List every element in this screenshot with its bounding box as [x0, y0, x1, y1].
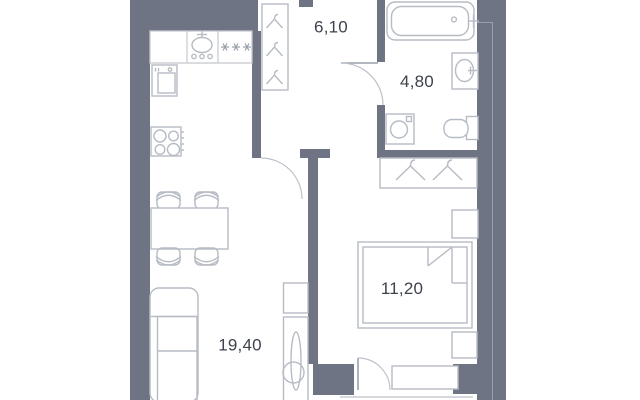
oven-icon	[152, 65, 177, 96]
bathtub-icon	[387, 2, 479, 40]
mirror-cabinet-icon	[283, 283, 308, 400]
bedroom-wardrobe	[380, 158, 477, 188]
wall-bottom-chunk-left	[313, 364, 354, 395]
chair-icon	[156, 248, 181, 265]
floor-plan-canvas: 6,10 4,80 11,20 19,40	[0, 0, 640, 400]
bedroom-cabinet	[452, 332, 477, 358]
hall-closet	[262, 4, 288, 90]
living-room-door	[261, 158, 302, 199]
balcony-window-icon	[392, 366, 458, 389]
room-label-bedroom: 11,20	[381, 279, 423, 298]
door-swing-icon	[358, 358, 390, 390]
bathroom-door	[341, 63, 383, 105]
door-swing-icon	[261, 158, 302, 199]
dining-table-icon	[151, 208, 228, 249]
wall-hall-stub	[300, 149, 330, 158]
wall-right	[477, 0, 506, 400]
stove-icon	[151, 127, 184, 156]
wall-bath-bottom	[377, 150, 477, 158]
bedside-table-icon	[452, 210, 478, 238]
wall-bottom-chunk-right	[453, 364, 493, 394]
chair-icon	[194, 248, 219, 265]
wall-top-nub	[299, 0, 313, 7]
room-label-hallway: 6,10	[314, 18, 348, 37]
balcony-door	[358, 358, 390, 390]
washing-machine-icon	[386, 114, 414, 144]
room-label-bathroom: 4,80	[400, 72, 434, 91]
wall-top-block	[150, 0, 258, 31]
wall-kitchen-partition	[252, 31, 261, 158]
wall-left	[130, 0, 150, 400]
room-label-living-kitchen: 19,40	[218, 336, 262, 355]
sofa-icon	[150, 288, 198, 400]
wall-bath-left-upper	[377, 0, 385, 62]
floor-plan-drawing: 6,10 4,80 11,20 19,40	[0, 0, 640, 400]
wall-bedroom-living	[308, 158, 318, 364]
toilet-icon	[444, 117, 478, 140]
dining-set	[151, 192, 228, 265]
chair-icon	[194, 192, 219, 209]
washbasin-icon	[452, 53, 478, 89]
chair-icon	[156, 192, 181, 209]
door-swing-icon	[341, 63, 383, 105]
